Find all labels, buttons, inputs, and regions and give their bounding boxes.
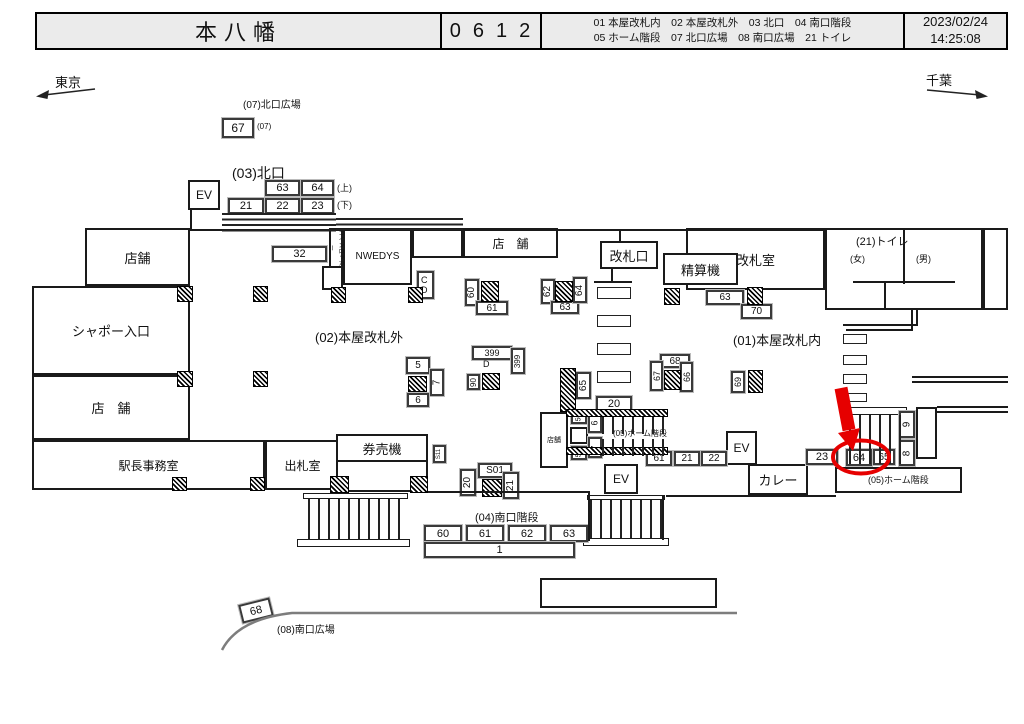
time-text: 14:25:08 [930,31,981,48]
ad-position-b62s: 62 [508,525,546,542]
stairs-stripes [336,218,463,230]
wall-segment [903,228,905,284]
station-code: 0612 [442,14,542,48]
station-name: 本八幡 [37,14,442,48]
right-tall-rect [916,407,937,459]
ad-position-b90v: 90 [467,374,480,390]
stair-cell [570,427,588,444]
ad-position-b32: 32 [272,246,327,262]
structural-pillar [253,286,268,302]
ad-position-b5: 5 [406,357,430,374]
legend-line-1: 01 本屋改札内 02 本屋改札外 03 北口 04 南口階段 [594,16,852,31]
structural-pillar [482,479,502,497]
shopN: 店 舗 [463,228,558,258]
ad-position-b63r: 63 [706,290,744,305]
ad-position-b64v: 64 [573,277,587,303]
ad-position-b21v: 21 [503,472,519,499]
wall-segment [912,381,1008,383]
wall-segment [619,229,621,242]
label-female: (女) [850,252,865,265]
structural-pillar [566,409,668,417]
wall-segment [428,491,590,493]
ad-position-s11-text: S11 [437,449,443,459]
ad-position-b23s: 23 [806,449,838,465]
kenbaiki: 券売機 [336,434,428,462]
shop2: 店 舗 [32,375,190,440]
kaisatsuguchi: 改札口 [600,241,658,269]
ad-position-b399v-text: 399 [514,354,523,367]
label-l07kita: (07)北口広場 [243,96,301,111]
header-bar: 本八幡 0612 01 本屋改札内 02 本屋改札外 03 北口 04 南口階段… [35,12,1008,50]
wall-segment [666,495,836,497]
structural-pillar [330,476,349,493]
structural-pillar [408,287,423,303]
ticket-gate-machine [843,374,867,384]
label-s07: (07) [257,122,271,131]
ad-position-b20v-text: 20 [463,477,474,488]
wall-segment [911,308,913,331]
chapeau: シャポー入口 [32,286,190,375]
ad-position-b60v-text: 60 [467,287,478,298]
stairs-steps [590,500,662,538]
label-l01: (01)本屋改札内 [733,330,821,349]
stairs-steps [602,439,668,456]
ad-position-b69v: 69 [731,371,745,393]
station-map-page: 本八幡 0612 01 本屋改札内 02 本屋改札外 03 北口 04 南口階段… [0,0,1024,724]
ad-position-b67: 67 [222,118,254,138]
structural-pillar [177,286,193,302]
ad-position-b6v-text: 6 [590,420,600,425]
ev-north: EV [188,180,220,210]
ad-position-b67v: 67 [650,361,663,391]
ticket-gate-machine [597,343,631,355]
structural-pillar [555,281,573,302]
shussatsu: 出札室 [265,440,340,490]
ad-position-b66v: 66 [680,362,693,392]
label-lshita: (下) [337,198,352,211]
structural-pillar [664,370,681,390]
ad-position-b23n: 23 [301,198,334,214]
ad-position-b399: 399 [472,346,512,360]
curry: カレー [748,464,808,495]
wall-segment [912,376,1008,378]
ad-position-b62v-text: 62 [543,286,554,297]
stairs-steps [602,417,668,434]
ad-position-b61t: 61 [466,525,504,542]
south-plaza-rect [540,578,717,608]
coinlocker: コインロッカー [329,228,343,268]
ticket-gate-machine [597,287,631,299]
ad-position-b69v-text: 69 [733,377,743,387]
north-corridor [412,228,463,258]
label-l03kita: (03)北口 [232,163,285,183]
ticket-gate-machine [597,315,631,327]
nwedys: NWEDYS [343,228,412,285]
stationmaster: 駅長事務室 [32,440,265,490]
ad-position-b6: 6 [407,393,429,407]
ad-position-b21s: 21 [674,451,700,466]
stairs-stripes [222,213,336,232]
structural-pillar [410,476,428,493]
structural-pillar [664,288,680,305]
label-lue: (上) [337,181,352,194]
structural-pillar [172,477,187,491]
label-l05box: (05)ホーム階段 [868,473,929,486]
wall-segment [662,495,664,540]
seisanki: 精算機 [663,253,738,285]
wall-segment [853,281,955,283]
ad-position-b65v: 65 [576,372,591,399]
wall-segment [846,329,913,331]
structural-pillar [408,376,427,392]
wall-segment [190,210,192,230]
structural-pillar [482,373,500,390]
label-l08: (08)南口広場 [277,621,335,636]
wall-segment [937,411,1008,413]
ad-position-b70: 70 [741,304,772,319]
wall-segment [843,324,918,326]
date-text: 2023/02/24 [923,14,988,31]
ad-position-s11: S11 [433,445,446,463]
legend-line-2: 05 ホーム階段 07 北口広場 08 南口広場 21 トイレ [594,31,852,46]
label-bD: D [483,359,490,369]
label-l02: (02)本屋改札外 [315,327,403,346]
stairs-steps [849,415,906,464]
chiba-direction-arrow [927,90,988,99]
label-male: (男) [916,252,931,265]
toilet-side-room [983,228,1008,310]
structural-pillar [331,287,346,303]
ad-position-b66v-text: 66 [682,372,692,382]
label-toilet: (21)トイレ [856,233,909,249]
bar [583,538,669,546]
ad-position-b1: 1 [424,542,575,558]
category-legend: 01 本屋改札内 02 本屋改札外 03 北口 04 南口階段 05 ホーム階段… [542,14,905,48]
ad-position-b7v: 7 [430,369,444,396]
ad-position-b64n: 64 [301,180,334,196]
ad-position-b22s: 22 [701,451,727,466]
ad-position-b60s: 60 [424,525,462,542]
structural-pillar [748,370,763,393]
ad-position-b399v: 399 [511,348,525,374]
structural-pillar [560,368,576,412]
ev1: EV [726,431,757,465]
ticket-gate-machine [845,393,867,402]
label-l04: (04)南口階段 [475,509,539,525]
shop3: 店舗 [540,412,568,468]
label-direction-label-tokyo: 東京 [55,72,81,91]
ticket-gate-machine [843,334,867,344]
wall-segment [916,308,918,326]
structural-pillar [250,477,265,491]
structural-pillar [481,281,499,302]
stairs-steps [308,498,407,540]
ad-position-b7v-text: 7 [432,380,443,386]
shop1: 店舗 [85,228,190,286]
structural-pillar [253,371,268,387]
ev2: EV [604,464,638,494]
ad-position-b21n: 21 [228,198,264,214]
ad-position-b21v-text: 21 [506,480,517,491]
ad-position-b22n: 22 [265,198,300,214]
ad-position-b68t: 68 [238,597,274,623]
label-direction-label-chiba: 千葉 [926,70,952,89]
ad-position-b65v-text: 65 [578,380,589,391]
wall-segment [594,281,632,283]
ad-position-b61g: 61 [476,301,508,315]
ad-position-b63t: 63 [550,525,588,542]
bar [297,539,410,547]
ad-position-b67v-text: 67 [652,371,662,381]
ticket-gate-machine [843,355,867,365]
structural-pillar [747,287,763,305]
wall-segment [884,281,886,310]
ad-position-b64v-text: 64 [575,284,586,295]
wall-segment [916,308,1008,310]
wall-segment [937,406,1008,408]
structural-pillar [177,371,193,387]
timestamp: 2023/02/24 14:25:08 [905,14,1006,48]
ticket-gate-machine [597,371,631,383]
ad-position-b90v-text: 90 [469,378,478,387]
